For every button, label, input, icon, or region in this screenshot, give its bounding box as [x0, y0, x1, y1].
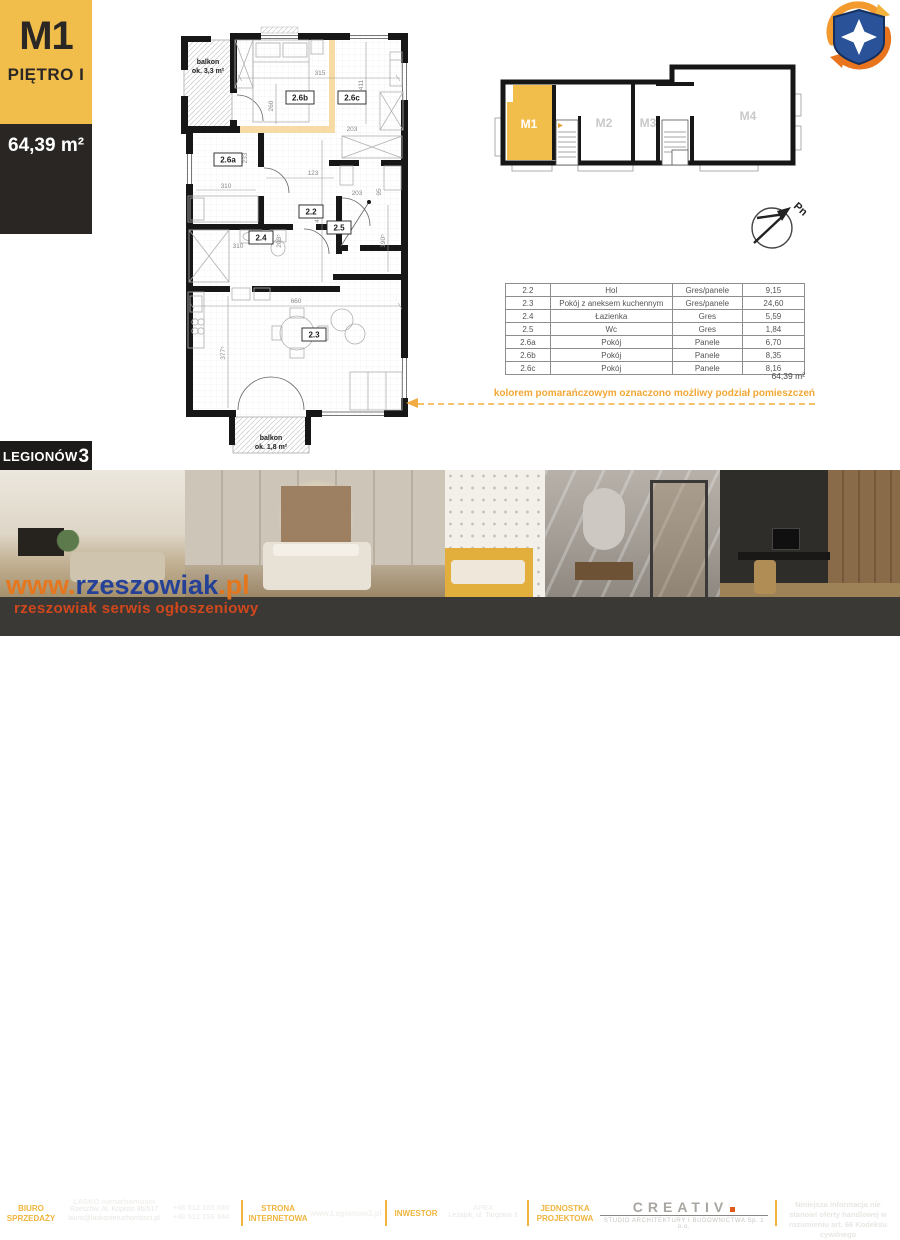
phones: +48 512 155 880 +48 512 155 844: [168, 1203, 234, 1221]
room-code: 2.4: [506, 310, 551, 323]
balcony-top-area: ok. 3,3 m²: [192, 68, 225, 75]
room-area: 6,70: [742, 336, 804, 349]
room-label-23: 2.3: [308, 331, 320, 340]
footer-divider: [385, 1200, 387, 1226]
room-code: 2.2: [506, 284, 551, 297]
room-flooring: Gres: [672, 310, 742, 323]
dim-label: 260: [268, 100, 275, 111]
footer-bar: BIURO SPRZEDAŻY LASKO nieruchomości Rzes…: [0, 597, 900, 636]
room-label-26a: 2.6a: [220, 156, 236, 165]
dim-label: 123: [308, 170, 319, 177]
balcony-bottom-area: ok. 1,8 m²: [255, 444, 288, 451]
sales-office-label: BIURO SPRZEDAŻY: [2, 1204, 60, 1223]
city-logo: [820, 0, 898, 74]
room-label-22: 2.2: [305, 208, 317, 217]
office-email[interactable]: biuro@laskonieruchomosci.pl: [62, 1215, 166, 1224]
room-code: 2.6a: [506, 336, 551, 349]
investor-address: Leżajsk, ul. Targowa 3: [443, 1212, 523, 1221]
room-name: Pokój: [550, 362, 672, 375]
building-overview: M1 M2 M3 M4: [492, 42, 808, 177]
overview-label-m4: M4: [740, 109, 757, 123]
dim-label: 203: [347, 126, 358, 133]
room-name: Pokój: [550, 349, 672, 362]
photo-bathroom: [545, 470, 720, 597]
floorplan: 315 411 260 203 233 310 123 203 95 310 2…: [170, 25, 420, 460]
room-area: 1,84: [742, 323, 804, 336]
room-area: 24,60: [742, 297, 804, 310]
division-annotation: kolorem pomarańczowym oznaczono możliwy …: [430, 388, 815, 399]
room-name: Łazienka: [550, 310, 672, 323]
table-row: 2.5 Wc Gres 1,84: [506, 323, 805, 336]
room-name: Hol: [550, 284, 672, 297]
dim-label: 203⁵: [276, 234, 283, 248]
total-area: 64,39 m²: [8, 135, 92, 157]
legionow-number: 3: [79, 446, 90, 468]
footer-divider: [241, 1200, 243, 1226]
investor-label: INWESTOR: [391, 1209, 441, 1219]
phone-1[interactable]: +48 512 155 880: [168, 1203, 234, 1212]
compass: Pn: [745, 195, 815, 255]
room-flooring: Panele: [672, 349, 742, 362]
room-name: Pokój z aneksem kuchennym: [550, 297, 672, 310]
legal-disclaimer: Niniejsza informacja nie stanowi oferty …: [781, 1200, 895, 1240]
room-table: 2.2 Hol Gres/panele 9,15 2.3 Pokój z ane…: [505, 283, 805, 375]
annotation-arrow-icon: [406, 398, 418, 408]
investor-info: APEX Leżajsk, ul. Targowa 3: [443, 1203, 523, 1221]
area-box: 64,39 m²: [0, 124, 92, 234]
annotation-dashed-line: [418, 403, 815, 405]
room-label-26b: 2.6b: [292, 94, 308, 103]
table-total: 64,39 m²: [700, 371, 805, 381]
room-area: 8,35: [742, 349, 804, 362]
table-row: 2.3 Pokój z aneksem kuchennym Gres/panel…: [506, 297, 805, 310]
photo-bedroom: [185, 470, 445, 597]
unit-number: M1: [0, 14, 92, 59]
room-name: Pokój: [550, 336, 672, 349]
dim-label: 203: [352, 190, 363, 197]
creativ-square-icon: [730, 1207, 735, 1212]
creativ-name-text: CREATIV: [633, 1199, 728, 1215]
legionow-logo: LEGIONÓW 3: [0, 441, 92, 472]
dim-label: 310: [221, 183, 232, 190]
dim-label: 95: [376, 188, 383, 196]
room-flooring: Gres/panele: [672, 284, 742, 297]
dim-label: 190⁵: [380, 234, 387, 248]
room-flooring: Gres: [672, 323, 742, 336]
photo-kids-room: [445, 470, 545, 597]
dim-label: 315: [315, 70, 326, 77]
floor-label: PIĘTRO I: [0, 65, 92, 85]
table-row: 2.6b Pokój Panele 8,35: [506, 349, 805, 362]
creativ-logo: CREATIV STUDIO ARCHITEKTURY I BUDOWNICTW…: [600, 1200, 768, 1230]
table-row: 2.6a Pokój Panele 6,70: [506, 336, 805, 349]
creativ-subtitle: STUDIO ARCHITEKTURY I BUDOWNICTWA Sp. z …: [600, 1215, 768, 1230]
room-area: 9,15: [742, 284, 804, 297]
table-row: 2.4 Łazienka Gres 5,59: [506, 310, 805, 323]
table-row: 2.2 Hol Gres/panele 9,15: [506, 284, 805, 297]
room-label-26c: 2.6c: [344, 94, 360, 103]
overview-label-m1: M1: [521, 117, 538, 131]
room-label-25: 2.5: [333, 224, 345, 233]
legionow-name: LEGIONÓW: [3, 449, 78, 464]
overview-label-m2: M2: [596, 116, 613, 130]
photo-strip: [0, 470, 900, 597]
website-label: STRONA INTERNETOWA: [247, 1204, 309, 1223]
office-name: LASKO nieruchomości: [62, 1197, 166, 1206]
dim-label: 660: [291, 298, 302, 305]
sales-office-contact: LASKO nieruchomości Rzeszów, Al. Kopisto…: [62, 1197, 166, 1223]
photo-office: [720, 470, 900, 597]
phone-2[interactable]: +48 512 155 844: [168, 1212, 234, 1221]
balcony-top-label: balkon: [197, 59, 220, 66]
room-code: 2.5: [506, 323, 551, 336]
overview-label-m3: M3: [640, 116, 657, 130]
unit-badge: M1 PIĘTRO I: [0, 0, 92, 124]
investor-name: APEX: [443, 1203, 523, 1212]
room-code: 2.6b: [506, 349, 551, 362]
compass-north-label: Pn: [791, 200, 810, 219]
dim-label: 310: [233, 243, 244, 250]
design-unit-label: JEDNOSTKA PROJEKTOWA: [533, 1204, 597, 1223]
footer-divider: [527, 1200, 529, 1226]
room-area: 5,59: [742, 310, 804, 323]
dim-label: 411: [358, 79, 365, 90]
room-code: 2.6c: [506, 362, 551, 375]
dim-label: 377⁵: [220, 346, 227, 360]
room-flooring: Panele: [672, 336, 742, 349]
room-name: Wc: [550, 323, 672, 336]
footer-divider: [775, 1200, 777, 1226]
website-link[interactable]: www.Legionow3.pl: [310, 1209, 380, 1218]
room-flooring: Gres/panele: [672, 297, 742, 310]
room-code: 2.3: [506, 297, 551, 310]
office-address: Rzeszów, Al. Kopisto 8b/517: [62, 1206, 166, 1215]
room-label-24: 2.4: [255, 234, 267, 243]
balcony-bottom-label: balkon: [260, 435, 283, 442]
dim-label: 233: [242, 152, 249, 163]
photo-living-room: [0, 470, 185, 597]
